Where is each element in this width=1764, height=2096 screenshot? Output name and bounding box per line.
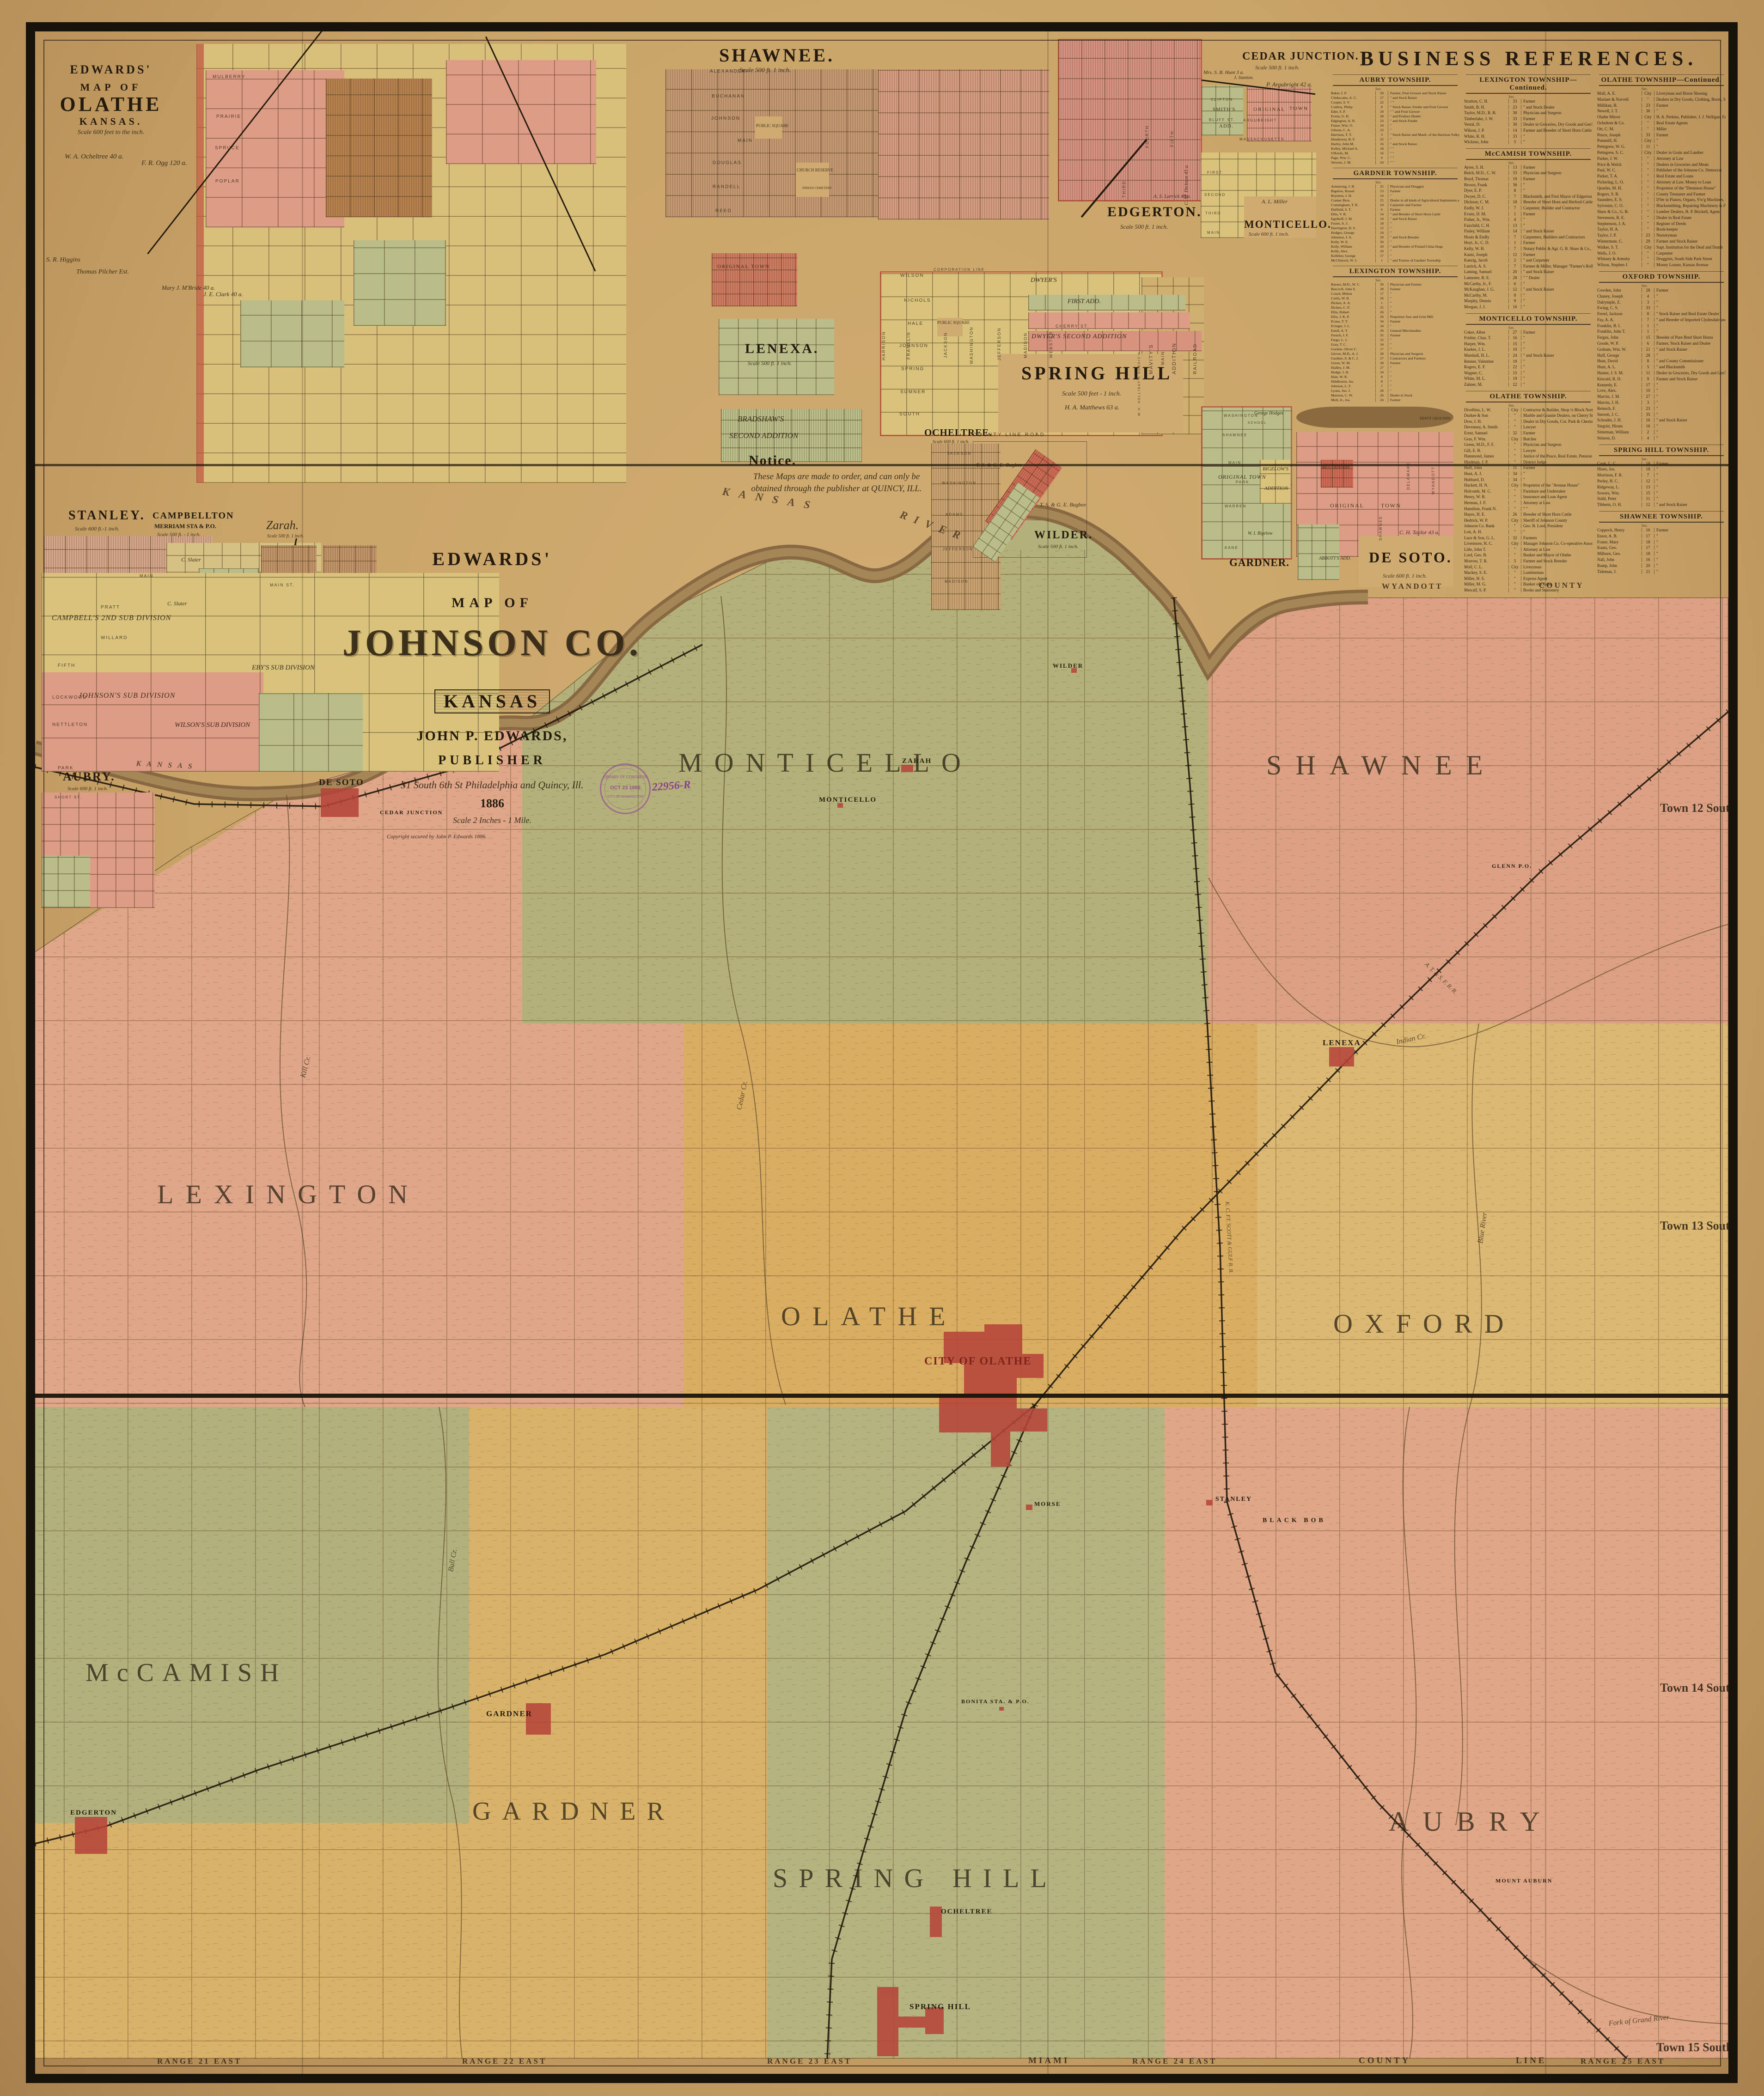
sheet-inner-border bbox=[43, 40, 1721, 2066]
map-sheet: BUSINESS REFERENCES. AUBRY TOWNSHIP. Sec… bbox=[0, 0, 1764, 2096]
